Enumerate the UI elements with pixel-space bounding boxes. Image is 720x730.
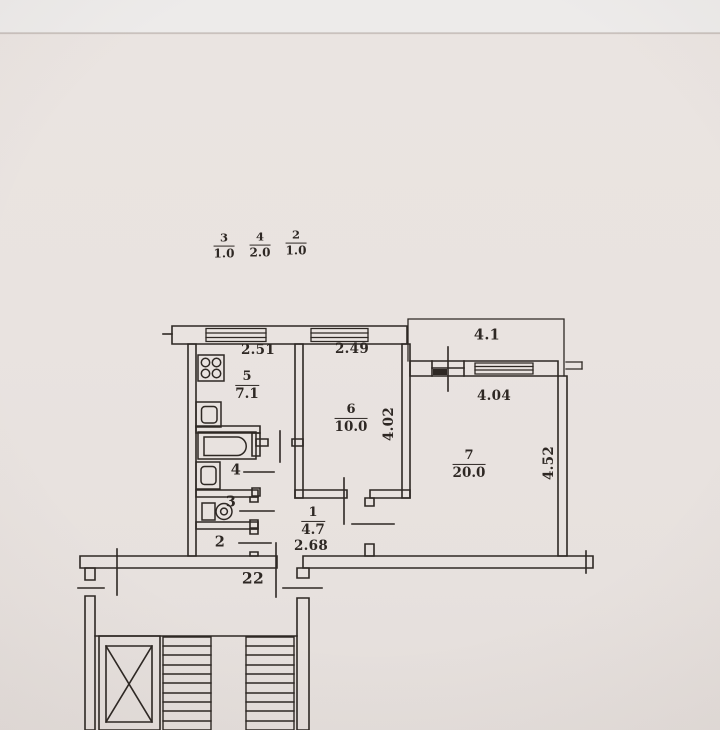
fraction-numerator: 4 <box>250 231 271 246</box>
room-label-bedroom: 7 20.0 <box>453 449 486 481</box>
window-icon <box>311 329 368 342</box>
sink-icon <box>196 462 220 489</box>
sheet-fraction-1: 3 1.0 <box>214 232 235 261</box>
room-number: 1 <box>301 506 325 522</box>
room-area: 4.7 <box>301 522 325 538</box>
room-number: 6 <box>335 403 368 419</box>
room-label-closet: 2 <box>215 534 225 551</box>
bathtub-icon <box>198 432 256 459</box>
window-icon <box>206 329 266 342</box>
floor-plan-drawing <box>0 0 720 730</box>
window-icon <box>475 363 533 374</box>
balcony-door <box>432 347 464 391</box>
room-area: 10.0 <box>335 419 368 435</box>
room-label-bathroom: 4 <box>231 462 241 479</box>
dim-kitchen-width: 2.51 <box>241 342 275 358</box>
elevator-icon <box>99 636 160 730</box>
fraction-numerator: 2 <box>286 229 307 244</box>
room-area: 7.1 <box>235 386 259 402</box>
wet-room-walls <box>196 426 260 556</box>
room-label-hallway: 1 4.7 <box>301 506 325 538</box>
fraction-denominator: 1.0 <box>286 243 307 257</box>
fraction-numerator: 3 <box>214 232 235 247</box>
dim-bedroom-width: 4.04 <box>477 388 511 404</box>
dim-living-width: 2.49 <box>335 341 369 357</box>
balcony-wall-and-door <box>410 347 558 391</box>
sheet-fraction-3: 2 1.0 <box>286 229 307 258</box>
stove-icon <box>198 355 224 381</box>
dim-hallway-width: 2.68 <box>294 538 328 554</box>
sink-icon <box>196 402 221 427</box>
dim-bedroom-depth: 4.52 <box>541 446 557 480</box>
room-area: 20.0 <box>453 465 486 481</box>
room-number: 7 <box>453 449 486 465</box>
scanned-floor-plan: 3 1.0 4 2.0 2 1.0 2.51 2.49 4.1 4.04 4.0… <box>0 0 720 730</box>
apartment-number: 22 <box>242 569 264 588</box>
balcony-area-label: 4.1 <box>474 327 500 344</box>
stairs-icon <box>163 637 211 730</box>
dim-living-depth: 4.02 <box>381 407 397 441</box>
room-label-toilet: 3 <box>226 494 236 511</box>
fraction-denominator: 2.0 <box>250 245 271 259</box>
room-label-kitchen: 5 7.1 <box>235 370 259 402</box>
room-label-living: 6 10.0 <box>335 403 368 435</box>
room-number: 5 <box>235 370 259 386</box>
fraction-denominator: 1.0 <box>214 246 235 260</box>
sheet-fraction-2: 4 2.0 <box>250 231 271 260</box>
stairs-icon <box>246 637 294 730</box>
